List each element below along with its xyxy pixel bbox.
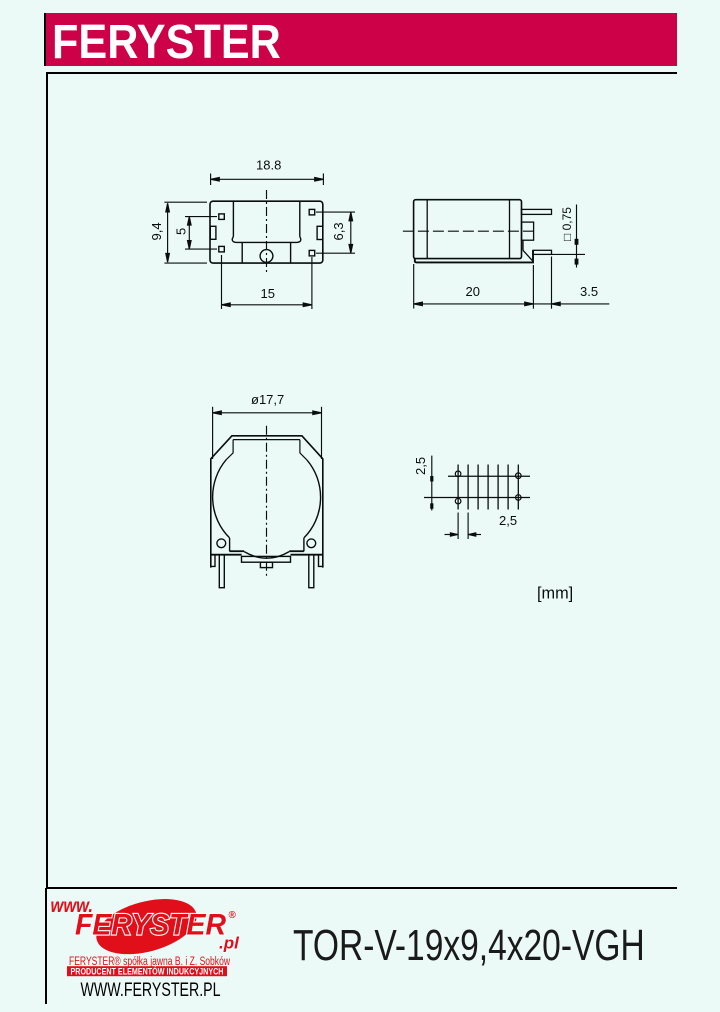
svg-text:□ 0,75: □ 0,75	[560, 207, 574, 241]
svg-text:2,5: 2,5	[499, 513, 517, 528]
svg-text:.pl: .pl	[219, 934, 240, 953]
svg-text:ø17,7: ø17,7	[251, 392, 284, 407]
svg-text:FERYSTER: FERYSTER	[75, 909, 226, 942]
svg-text:5: 5	[174, 228, 189, 235]
svg-text:®: ®	[229, 910, 237, 921]
svg-text:3.5: 3.5	[580, 284, 598, 299]
svg-text:2,5: 2,5	[413, 457, 428, 475]
svg-text:PRODUCENT ELEMENTÓW INDUKCYJNY: PRODUCENT ELEMENTÓW INDUKCYJNYCH	[71, 966, 224, 977]
svg-text:9,4: 9,4	[149, 222, 164, 240]
svg-text:18.8: 18.8	[256, 158, 281, 173]
svg-text:WWW.FERYSTER.PL: WWW.FERYSTER.PL	[81, 980, 221, 1001]
svg-text:6,3: 6,3	[331, 222, 346, 240]
svg-text:20: 20	[466, 284, 480, 299]
svg-text:15: 15	[261, 286, 275, 301]
svg-text:[mm]: [mm]	[537, 585, 573, 603]
